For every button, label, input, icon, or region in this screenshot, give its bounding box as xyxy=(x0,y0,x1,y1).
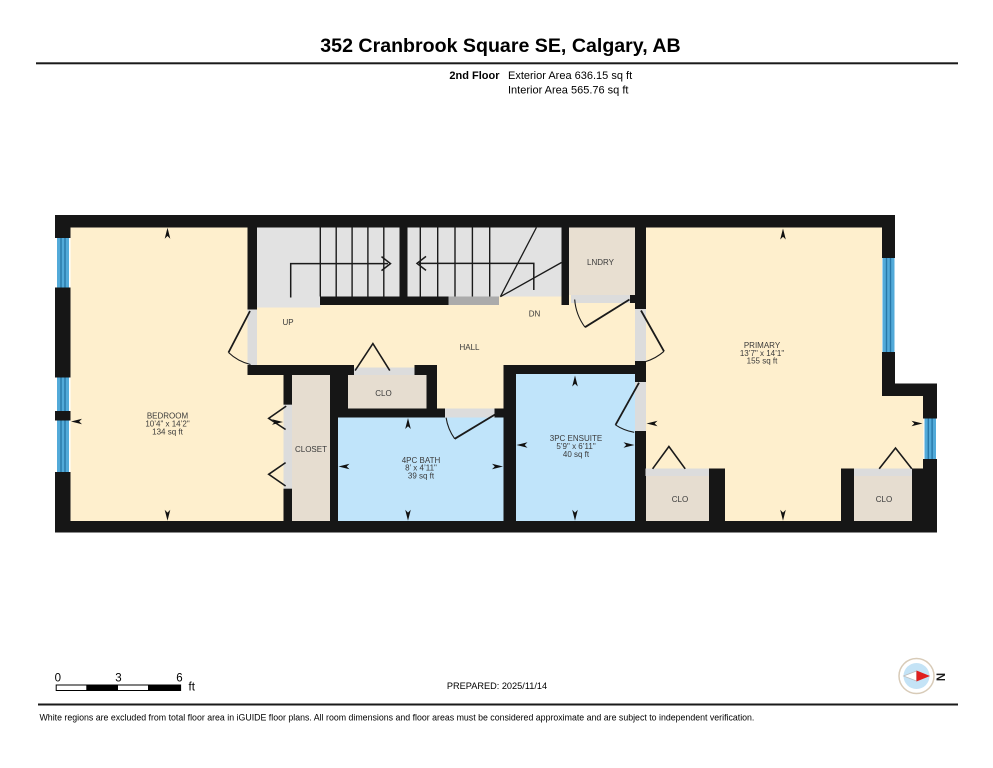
svg-text:40 sq ft: 40 sq ft xyxy=(563,450,590,459)
svg-text:CLO: CLO xyxy=(672,495,688,504)
svg-text:Interior Area 565.76 sq ft: Interior Area 565.76 sq ft xyxy=(508,85,628,97)
svg-text:CLOSET: CLOSET xyxy=(295,445,327,454)
svg-text:6: 6 xyxy=(176,673,182,685)
svg-text:39 sq ft: 39 sq ft xyxy=(408,472,435,481)
svg-text:0: 0 xyxy=(55,673,61,685)
svg-text:UP: UP xyxy=(282,318,293,327)
svg-text:HALL: HALL xyxy=(459,343,480,352)
svg-text:ft: ft xyxy=(189,682,196,694)
svg-text:PREPARED: 2025/11/14: PREPARED: 2025/11/14 xyxy=(447,681,547,691)
svg-text:CLO: CLO xyxy=(876,495,892,504)
svg-text:352 Cranbrook Square SE, Calga: 352 Cranbrook Square SE, Calgary, AB xyxy=(320,35,680,57)
svg-text:LNDRY: LNDRY xyxy=(587,258,615,267)
svg-text:155 sq ft: 155 sq ft xyxy=(747,356,778,365)
svg-text:134 sq ft: 134 sq ft xyxy=(152,427,183,436)
svg-text:2nd Floor: 2nd Floor xyxy=(449,70,500,82)
svg-text:Exterior Area 636.15 sq ft: Exterior Area 636.15 sq ft xyxy=(508,70,632,82)
svg-text:3: 3 xyxy=(115,673,121,685)
svg-text:CLO: CLO xyxy=(375,389,391,398)
svg-text:DN: DN xyxy=(529,310,541,319)
svg-text:N: N xyxy=(934,673,946,681)
svg-text:White regions are excluded fro: White regions are excluded from total fl… xyxy=(40,713,755,723)
